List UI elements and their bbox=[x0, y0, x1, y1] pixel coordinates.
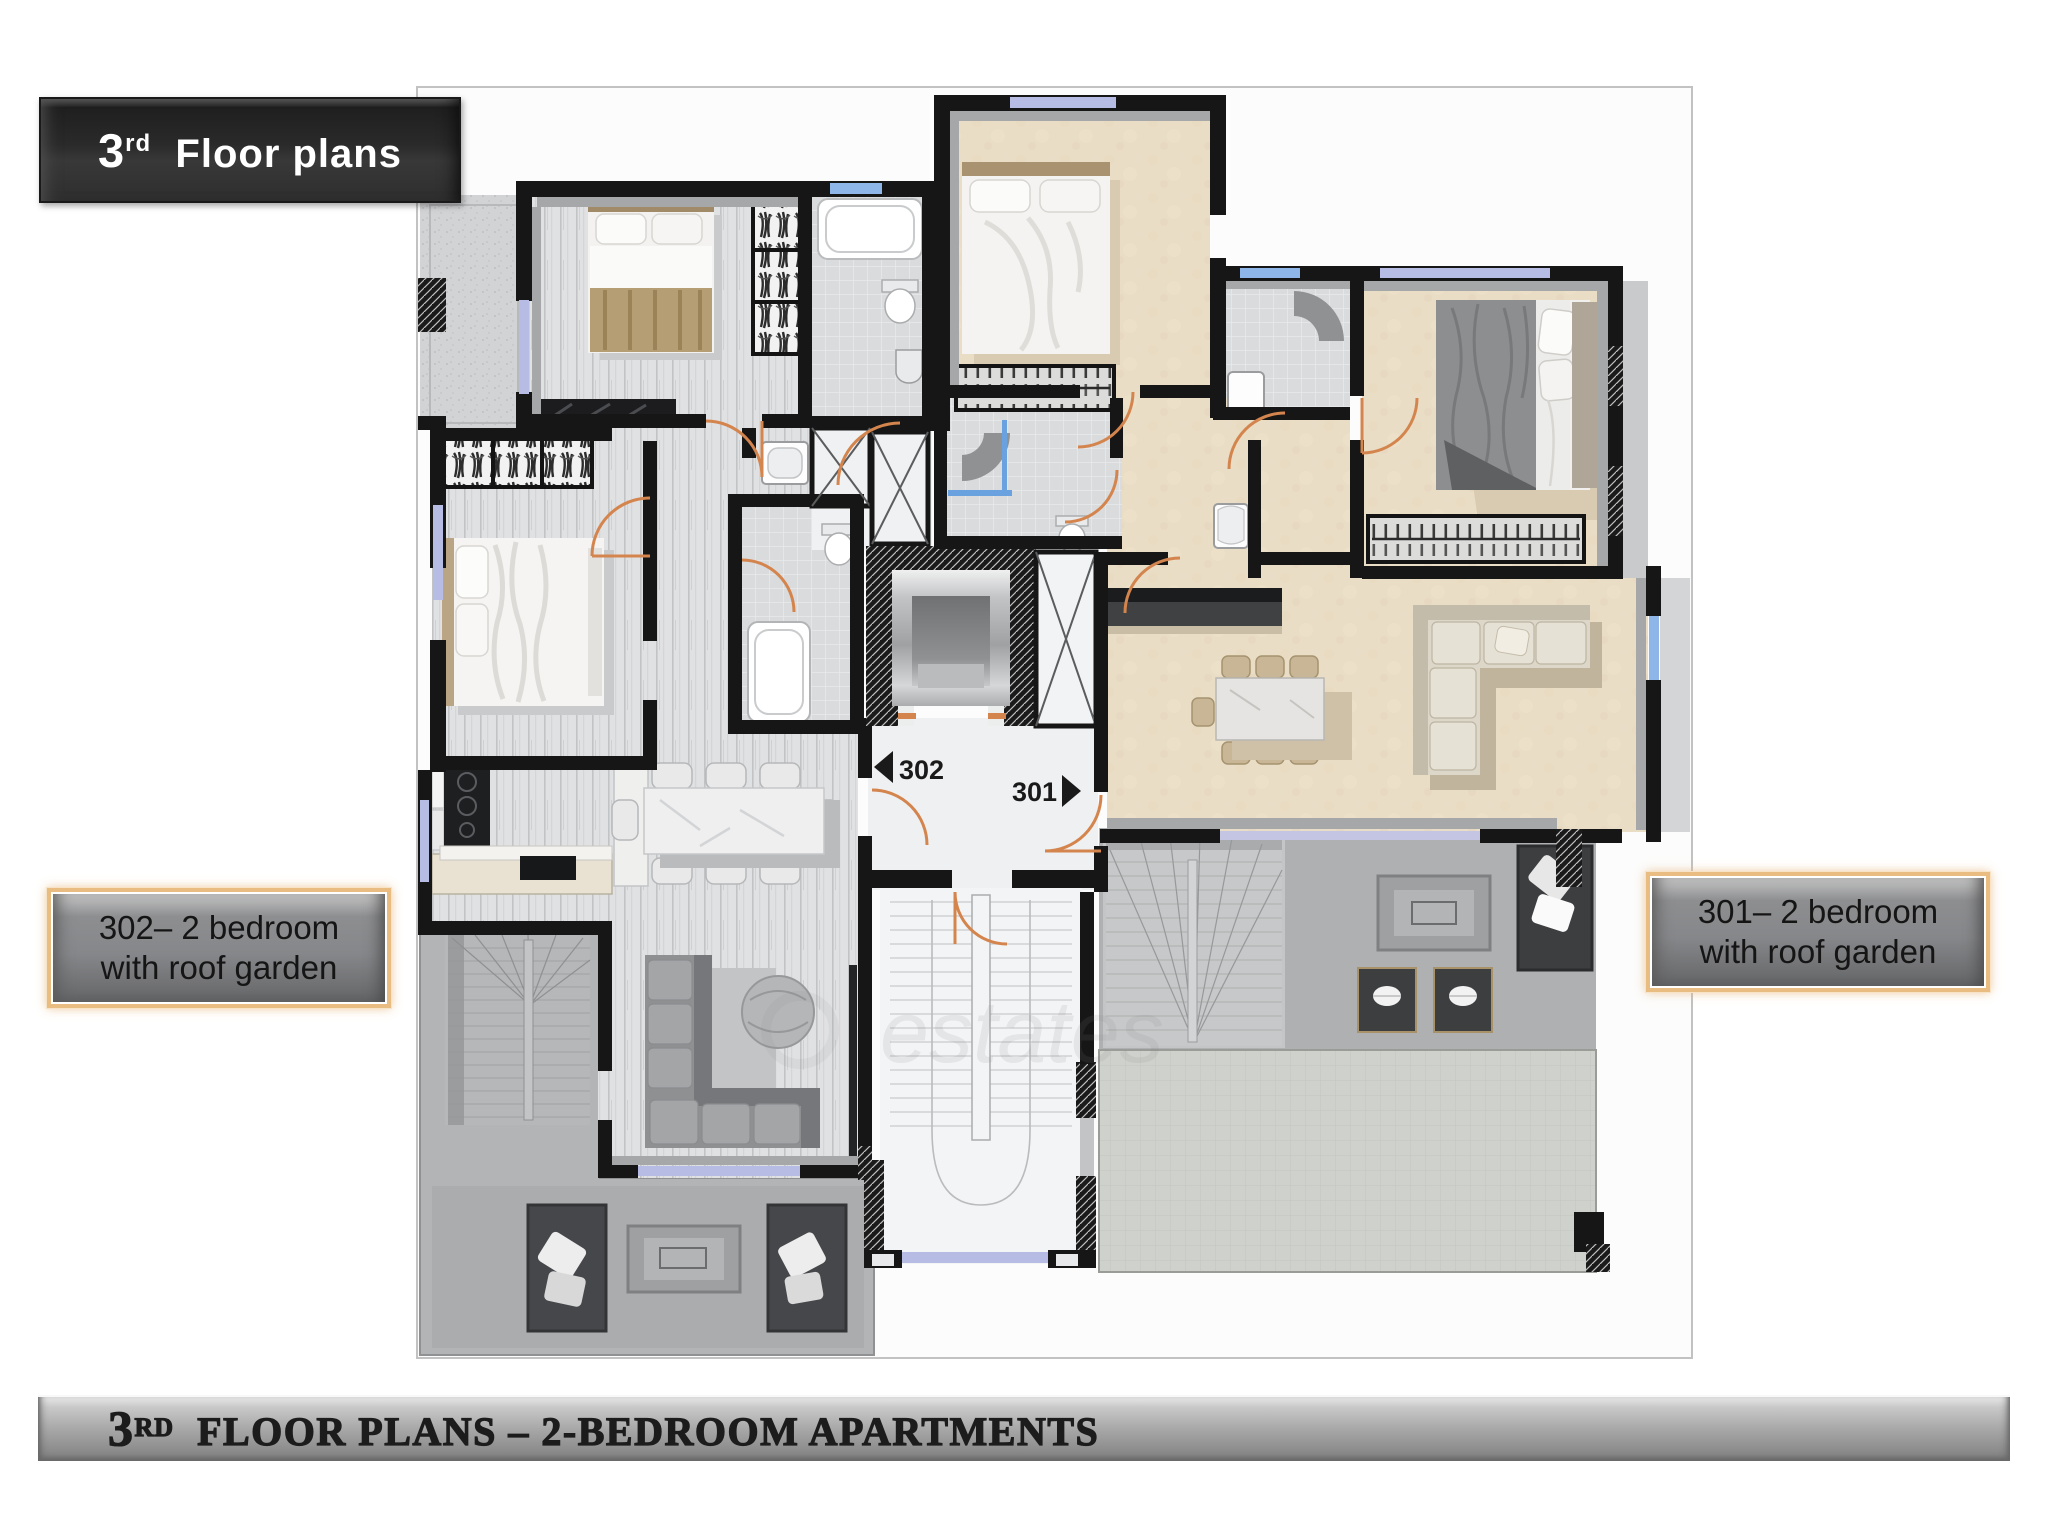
svg-text:estates: estates bbox=[880, 982, 1164, 1081]
svg-text:302: 302 bbox=[899, 755, 944, 785]
svg-text:301: 301 bbox=[1012, 777, 1057, 807]
